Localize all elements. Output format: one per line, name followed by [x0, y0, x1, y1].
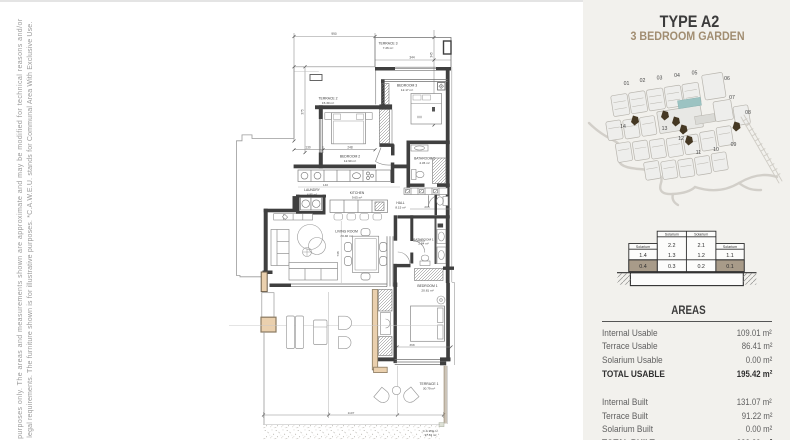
svg-text:140: 140 — [323, 183, 328, 187]
svg-text:TERRACE 3: TERRACE 3 — [378, 42, 397, 46]
svg-text:BEDROOM 3: BEDROOM 3 — [397, 84, 417, 88]
svg-text:08: 08 — [745, 110, 751, 116]
svg-text:TERRACE 1: TERRACE 1 — [419, 382, 438, 386]
svg-text:0.3: 0.3 — [668, 264, 676, 270]
svg-text:14: 14 — [620, 124, 626, 130]
svg-text:1.4: 1.4 — [639, 253, 647, 259]
svg-text:12.90 m²: 12.90 m² — [344, 159, 356, 163]
svg-text:09: 09 — [731, 142, 737, 148]
svg-text:375: 375 — [301, 109, 305, 115]
svg-text:1.1: 1.1 — [726, 253, 734, 259]
svg-text:1.2: 1.2 — [697, 253, 705, 259]
svg-text:BEDROOM 1: BEDROOM 1 — [417, 284, 437, 288]
svg-text:LIVING ROOM: LIVING ROOM — [335, 230, 358, 234]
svg-text:97.63 m²: 97.63 m² — [425, 433, 437, 437]
svg-text:10: 10 — [713, 147, 719, 153]
svg-text:1107: 1107 — [348, 411, 355, 415]
svg-text:7.26 m²: 7.26 m² — [383, 46, 394, 50]
svg-text:248: 248 — [347, 146, 353, 150]
svg-text:Solarium: Solarium — [636, 245, 650, 249]
svg-text:TERRACE 2: TERRACE 2 — [318, 97, 337, 101]
svg-text:9.65 m²: 9.65 m² — [352, 195, 362, 199]
svg-text:04: 04 — [674, 73, 680, 79]
svg-text:Solarium: Solarium — [723, 245, 737, 249]
svg-text:446: 446 — [394, 320, 398, 325]
svg-text:Solarium: Solarium — [694, 233, 708, 237]
svg-text:130: 130 — [305, 146, 311, 150]
svg-text:1.3: 1.3 — [668, 253, 676, 259]
svg-text:11: 11 — [696, 150, 701, 156]
svg-text:368: 368 — [409, 343, 414, 347]
svg-text:06: 06 — [724, 76, 730, 82]
svg-text:Solarium: Solarium — [665, 233, 679, 237]
svg-text:8.15 m²: 8.15 m² — [395, 205, 405, 209]
svg-text:4.36 m²: 4.36 m² — [419, 161, 429, 165]
svg-text:12: 12 — [678, 136, 684, 142]
svg-text:205: 205 — [424, 205, 429, 209]
svg-text:30.79 m²: 30.79 m² — [423, 387, 435, 391]
svg-text:13: 13 — [662, 126, 668, 132]
svg-text:20.40 m²: 20.40 m² — [340, 234, 352, 238]
svg-text:15.30 m²: 15.30 m² — [322, 101, 334, 105]
svg-text:03: 03 — [657, 76, 663, 82]
svg-text:0.4: 0.4 — [639, 264, 647, 270]
svg-text:01: 01 — [624, 81, 630, 87]
svg-text:344: 344 — [409, 56, 415, 60]
svg-text:0.2: 0.2 — [697, 264, 705, 270]
svg-text:2.84 m²: 2.84 m² — [418, 242, 428, 246]
svg-text:990: 990 — [331, 32, 337, 36]
svg-text:2.1: 2.1 — [697, 243, 705, 249]
svg-text:02: 02 — [640, 78, 646, 84]
svg-text:2.2: 2.2 — [668, 243, 676, 249]
svg-text:05: 05 — [692, 71, 698, 77]
svg-text:345: 345 — [430, 52, 434, 58]
svg-text:738: 738 — [336, 251, 340, 256]
svg-text:12.17 m²: 12.17 m² — [401, 88, 413, 92]
svg-text:0.1: 0.1 — [726, 264, 734, 270]
svg-text:20.81 m²: 20.81 m² — [421, 289, 433, 293]
svg-text:07: 07 — [729, 95, 735, 101]
svg-text:BEDROOM 2: BEDROOM 2 — [340, 155, 360, 159]
